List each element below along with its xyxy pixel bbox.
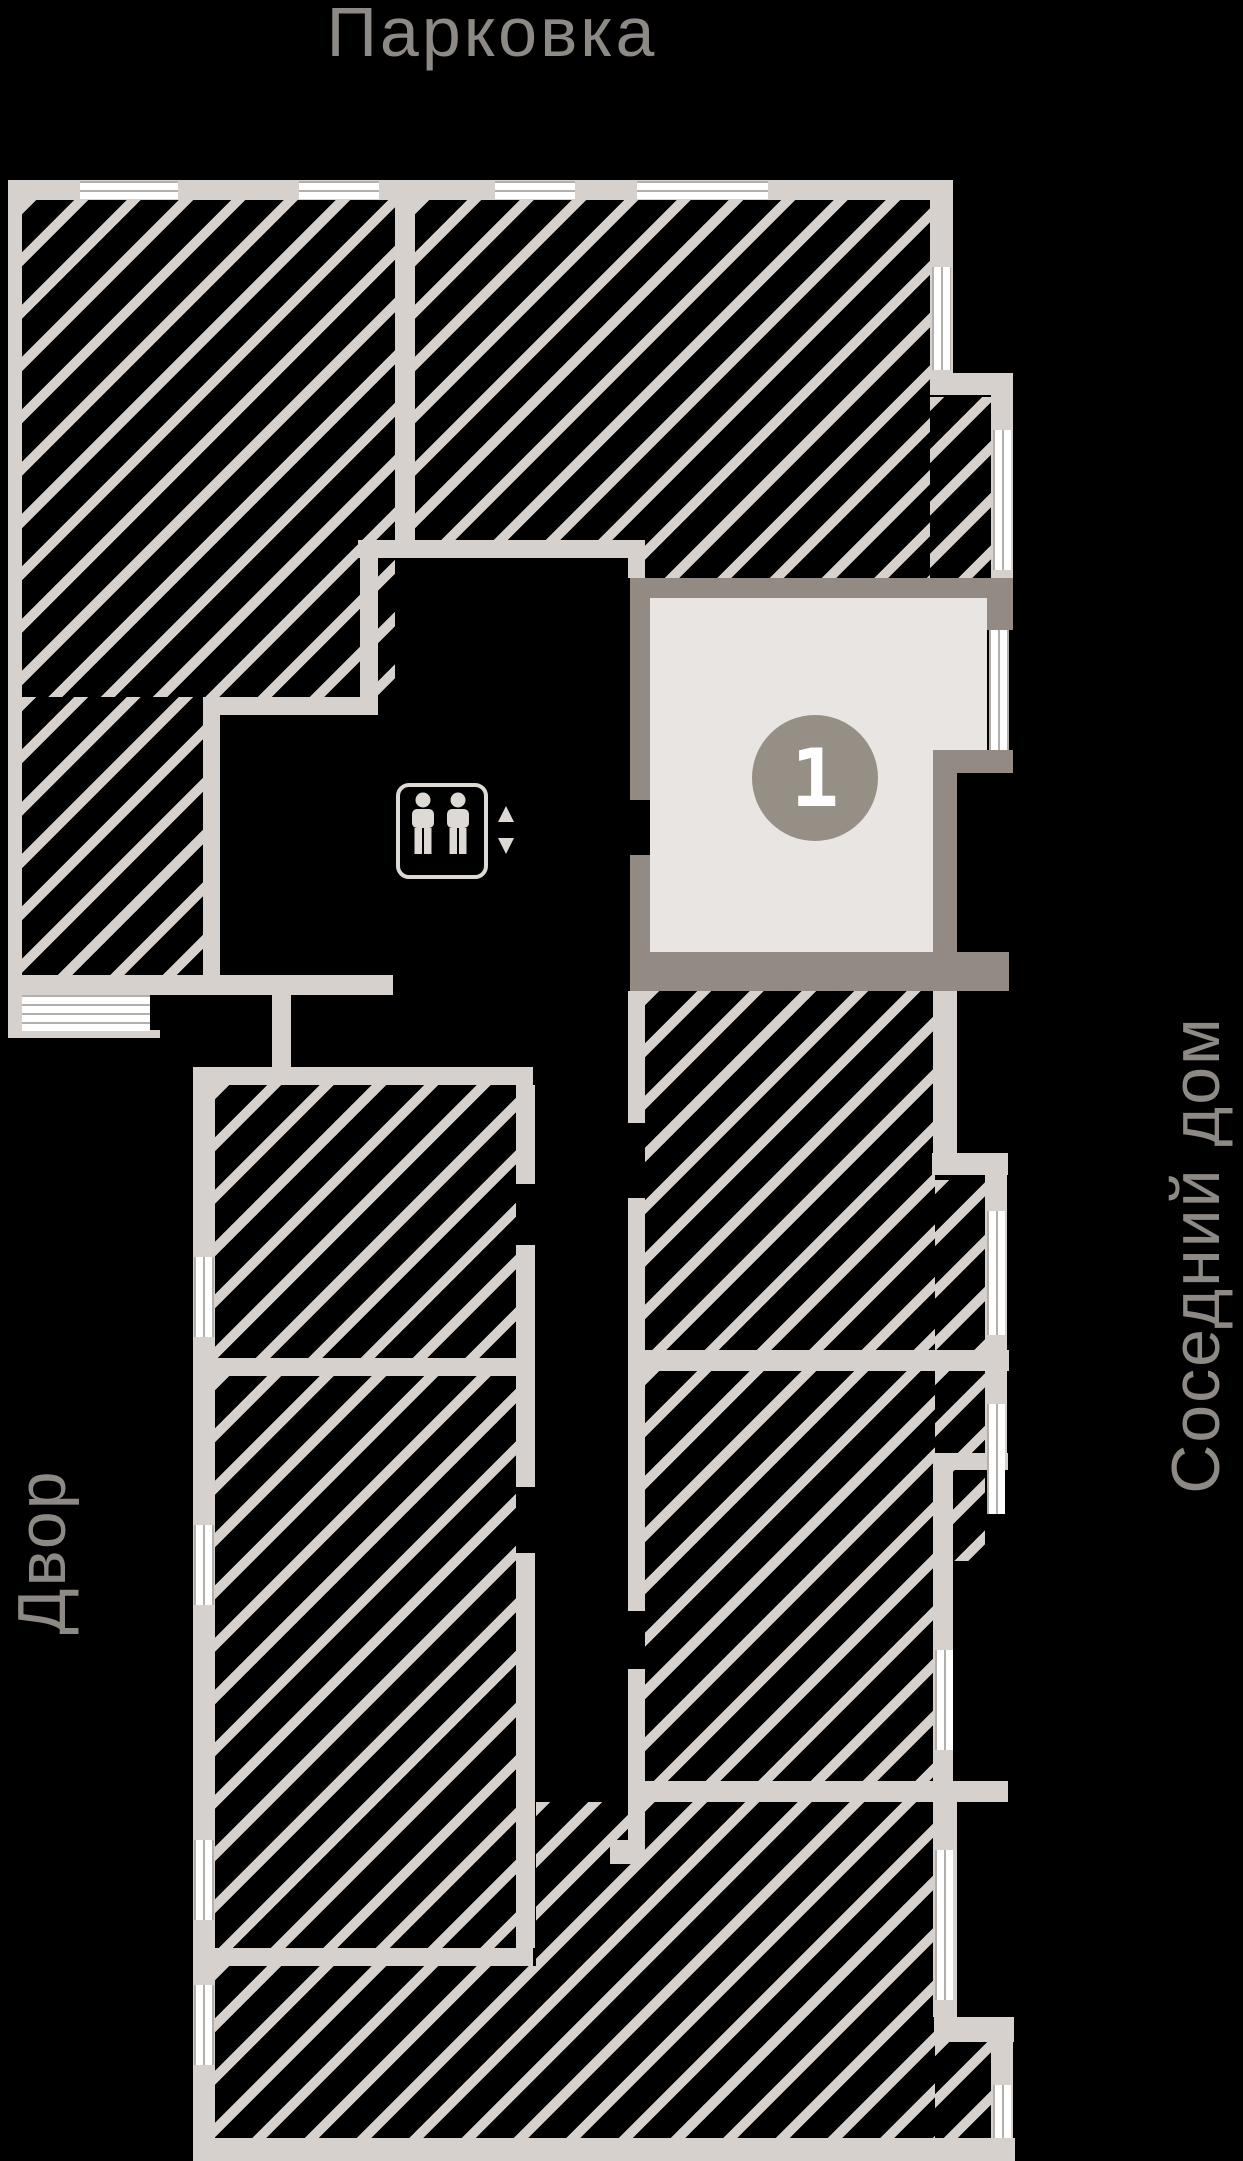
window xyxy=(194,1840,214,1920)
hatched-room-top-right-arm xyxy=(930,397,991,578)
window xyxy=(993,2085,1011,2138)
elevator-people-icon xyxy=(395,780,520,880)
window xyxy=(993,430,1011,570)
window xyxy=(935,1850,953,2000)
window xyxy=(80,181,178,199)
hatched-room-left-upper xyxy=(215,1085,516,1358)
window xyxy=(495,181,575,199)
wall xyxy=(203,697,220,995)
hatched-room-top-right xyxy=(415,200,930,578)
person-icon xyxy=(447,793,469,855)
apartment-1-notch xyxy=(957,773,987,952)
wall-block-top xyxy=(193,1067,533,1085)
window xyxy=(987,1211,1005,1335)
floor-plan: 1 Парковка Соседний дом Двор xyxy=(0,0,1243,2161)
wall-left xyxy=(8,180,22,1005)
apartment-1-wall-right xyxy=(987,598,1013,630)
hatched-room-bottom-right xyxy=(536,1802,935,2138)
wall-step xyxy=(930,373,1013,395)
wall-bottom xyxy=(193,2138,1015,2161)
window xyxy=(22,995,150,1031)
wall xyxy=(203,697,378,715)
label-neighbor-house: Соседний дом xyxy=(1157,1016,1235,1494)
elevator-icon xyxy=(395,780,520,880)
hatched-room-bottom-left-extension xyxy=(215,1966,536,2138)
window xyxy=(194,1257,214,1337)
hatched-room-bottom-right-arm xyxy=(935,2042,991,2138)
apartment-1-number-badge[interactable]: 1 xyxy=(752,715,878,841)
window xyxy=(987,1404,1005,1514)
window xyxy=(299,181,379,199)
wall-room-divider xyxy=(395,180,415,545)
wall-connector xyxy=(272,995,291,1067)
label-parking: Парковка xyxy=(327,0,658,72)
hatched-room-top-left xyxy=(22,200,395,697)
window xyxy=(194,1985,214,2065)
label-courtyard: Двор xyxy=(3,1469,81,1634)
wall-block-right xyxy=(516,1553,535,1948)
hatched-room-left-lower xyxy=(215,1376,516,1948)
wall-divider xyxy=(645,1781,1008,1802)
wall xyxy=(628,1371,645,1611)
wall xyxy=(628,991,645,1123)
apartment-1-wall-right xyxy=(933,773,957,952)
apartment-1-wall-jog xyxy=(933,750,1013,773)
wall xyxy=(8,1030,160,1038)
window xyxy=(637,181,768,199)
up-down-arrows-icon xyxy=(498,806,514,854)
window xyxy=(932,267,951,370)
wall-block-right xyxy=(516,1245,535,1487)
wall xyxy=(8,975,393,995)
apartment-1-wall-top xyxy=(630,578,1013,598)
hatched-room-below-apartment xyxy=(645,991,935,1350)
wall-right xyxy=(933,991,957,1155)
wall xyxy=(360,540,378,715)
wall-block-right xyxy=(516,1085,535,1184)
apartment-number: 1 xyxy=(791,732,839,825)
apartment-1-wall-left xyxy=(630,598,650,800)
wall xyxy=(628,1198,645,1350)
hatched-room-top-left-leg xyxy=(22,697,203,975)
wall xyxy=(628,540,645,578)
hatched-room-below-apartment-arm xyxy=(935,1180,985,1350)
wall-block-bottom xyxy=(207,1948,533,1966)
corridor-area xyxy=(415,558,628,578)
wall-step xyxy=(932,1153,1008,1175)
wall-stub xyxy=(610,1840,645,1864)
window xyxy=(194,1525,214,1605)
person-icon xyxy=(412,793,434,855)
apartment-1-window xyxy=(989,630,1009,750)
wall-corridor-top xyxy=(358,540,645,558)
hatched-room-middle-right xyxy=(645,1371,935,1781)
wall xyxy=(628,1669,645,1864)
wall-step xyxy=(934,2017,1014,2042)
wall-block-divider xyxy=(193,1358,533,1376)
apartment-1-wall-bottom xyxy=(630,952,1009,991)
window xyxy=(935,1650,953,1750)
wall-divider xyxy=(628,1350,1009,1371)
